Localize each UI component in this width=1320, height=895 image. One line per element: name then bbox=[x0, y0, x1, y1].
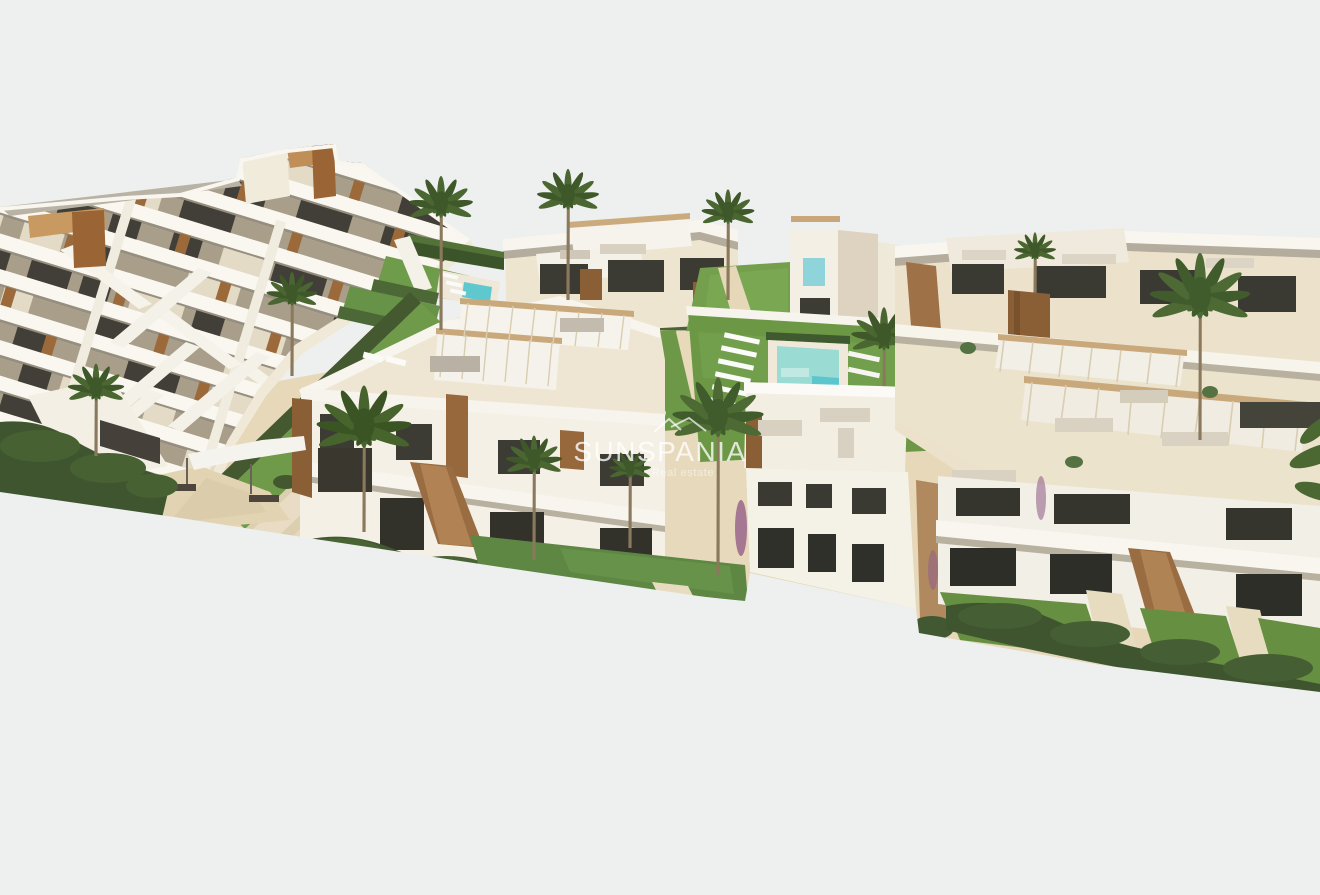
svg-text:SUNSPANIA: SUNSPANIA bbox=[573, 436, 746, 467]
svg-text:Real estate: Real estate bbox=[652, 467, 714, 479]
